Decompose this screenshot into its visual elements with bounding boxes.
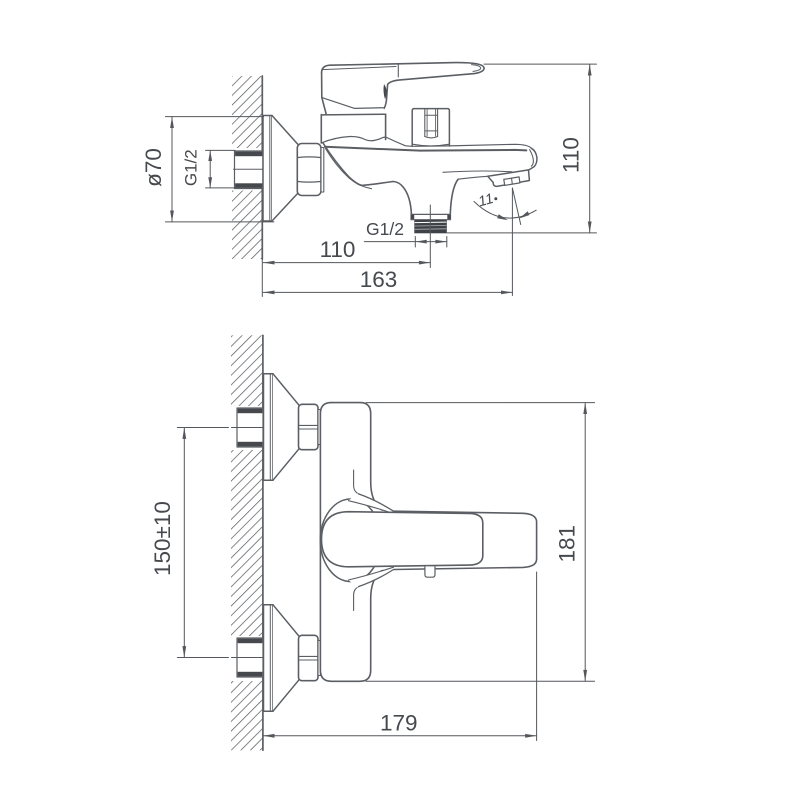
svg-text:181: 181 <box>555 525 580 563</box>
svg-text:163: 163 <box>360 267 398 292</box>
svg-text:150±10: 150±10 <box>150 501 175 576</box>
svg-text:179: 179 <box>380 711 418 736</box>
svg-text:110: 110 <box>559 137 584 173</box>
svg-text:110: 110 <box>320 237 356 262</box>
svg-text:G1/2: G1/2 <box>182 149 201 186</box>
svg-text:ø70: ø70 <box>141 148 166 187</box>
svg-text:G1/2: G1/2 <box>366 219 404 239</box>
